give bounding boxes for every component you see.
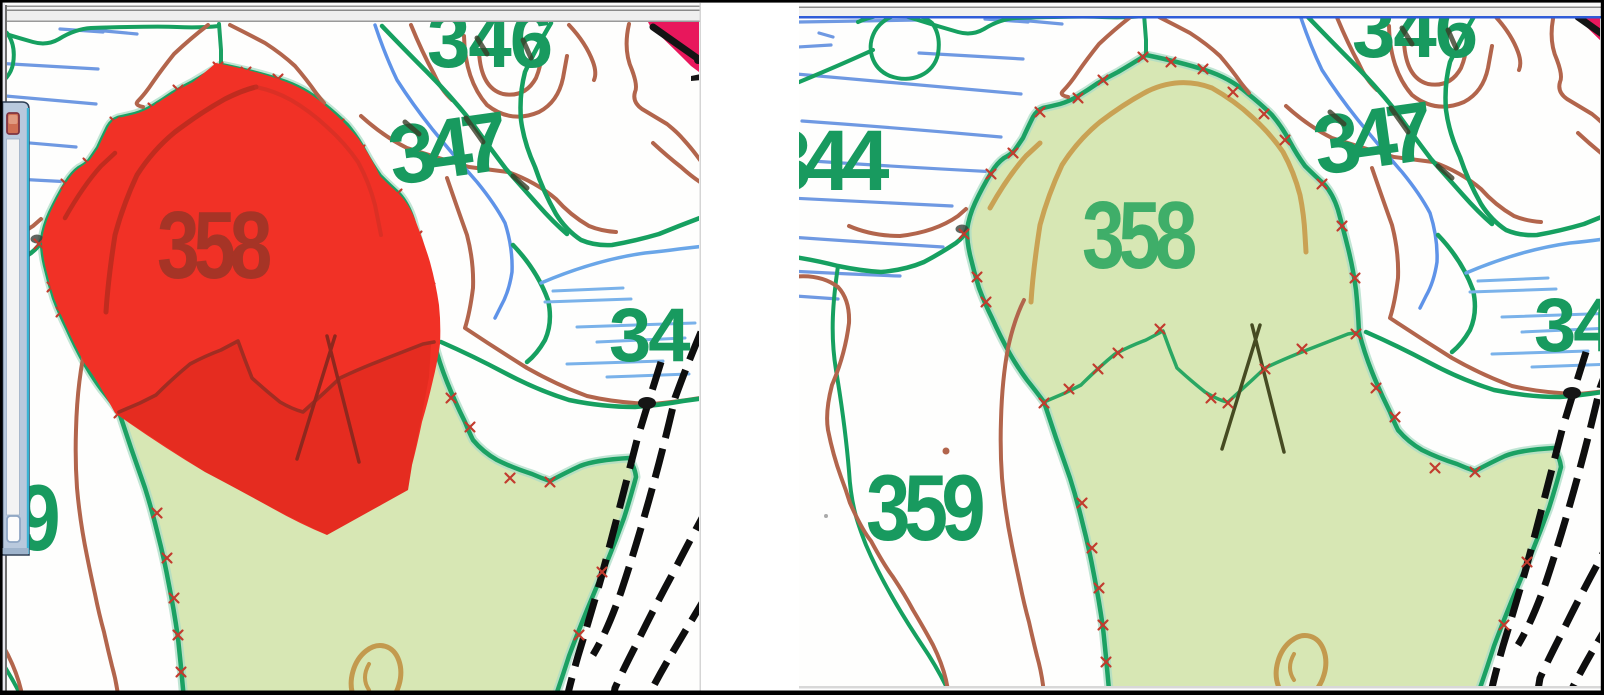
svg-text:358: 358 [157, 192, 270, 299]
